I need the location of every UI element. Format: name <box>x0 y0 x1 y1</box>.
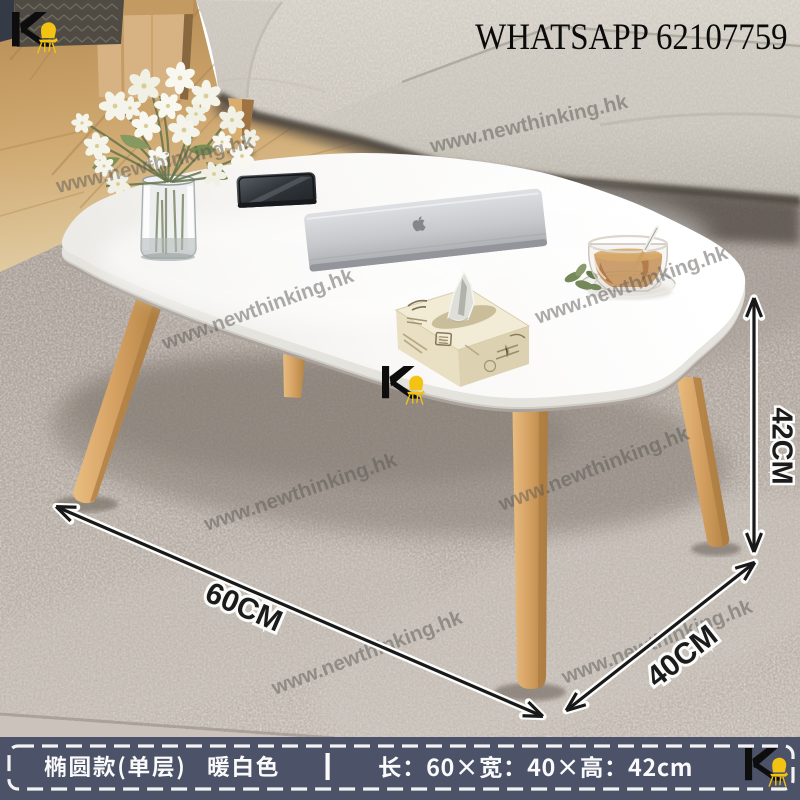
svg-text:WHATSAPP 62107759: WHATSAPP 62107759 <box>475 16 787 57</box>
svg-text:42CM: 42CM <box>765 407 797 484</box>
